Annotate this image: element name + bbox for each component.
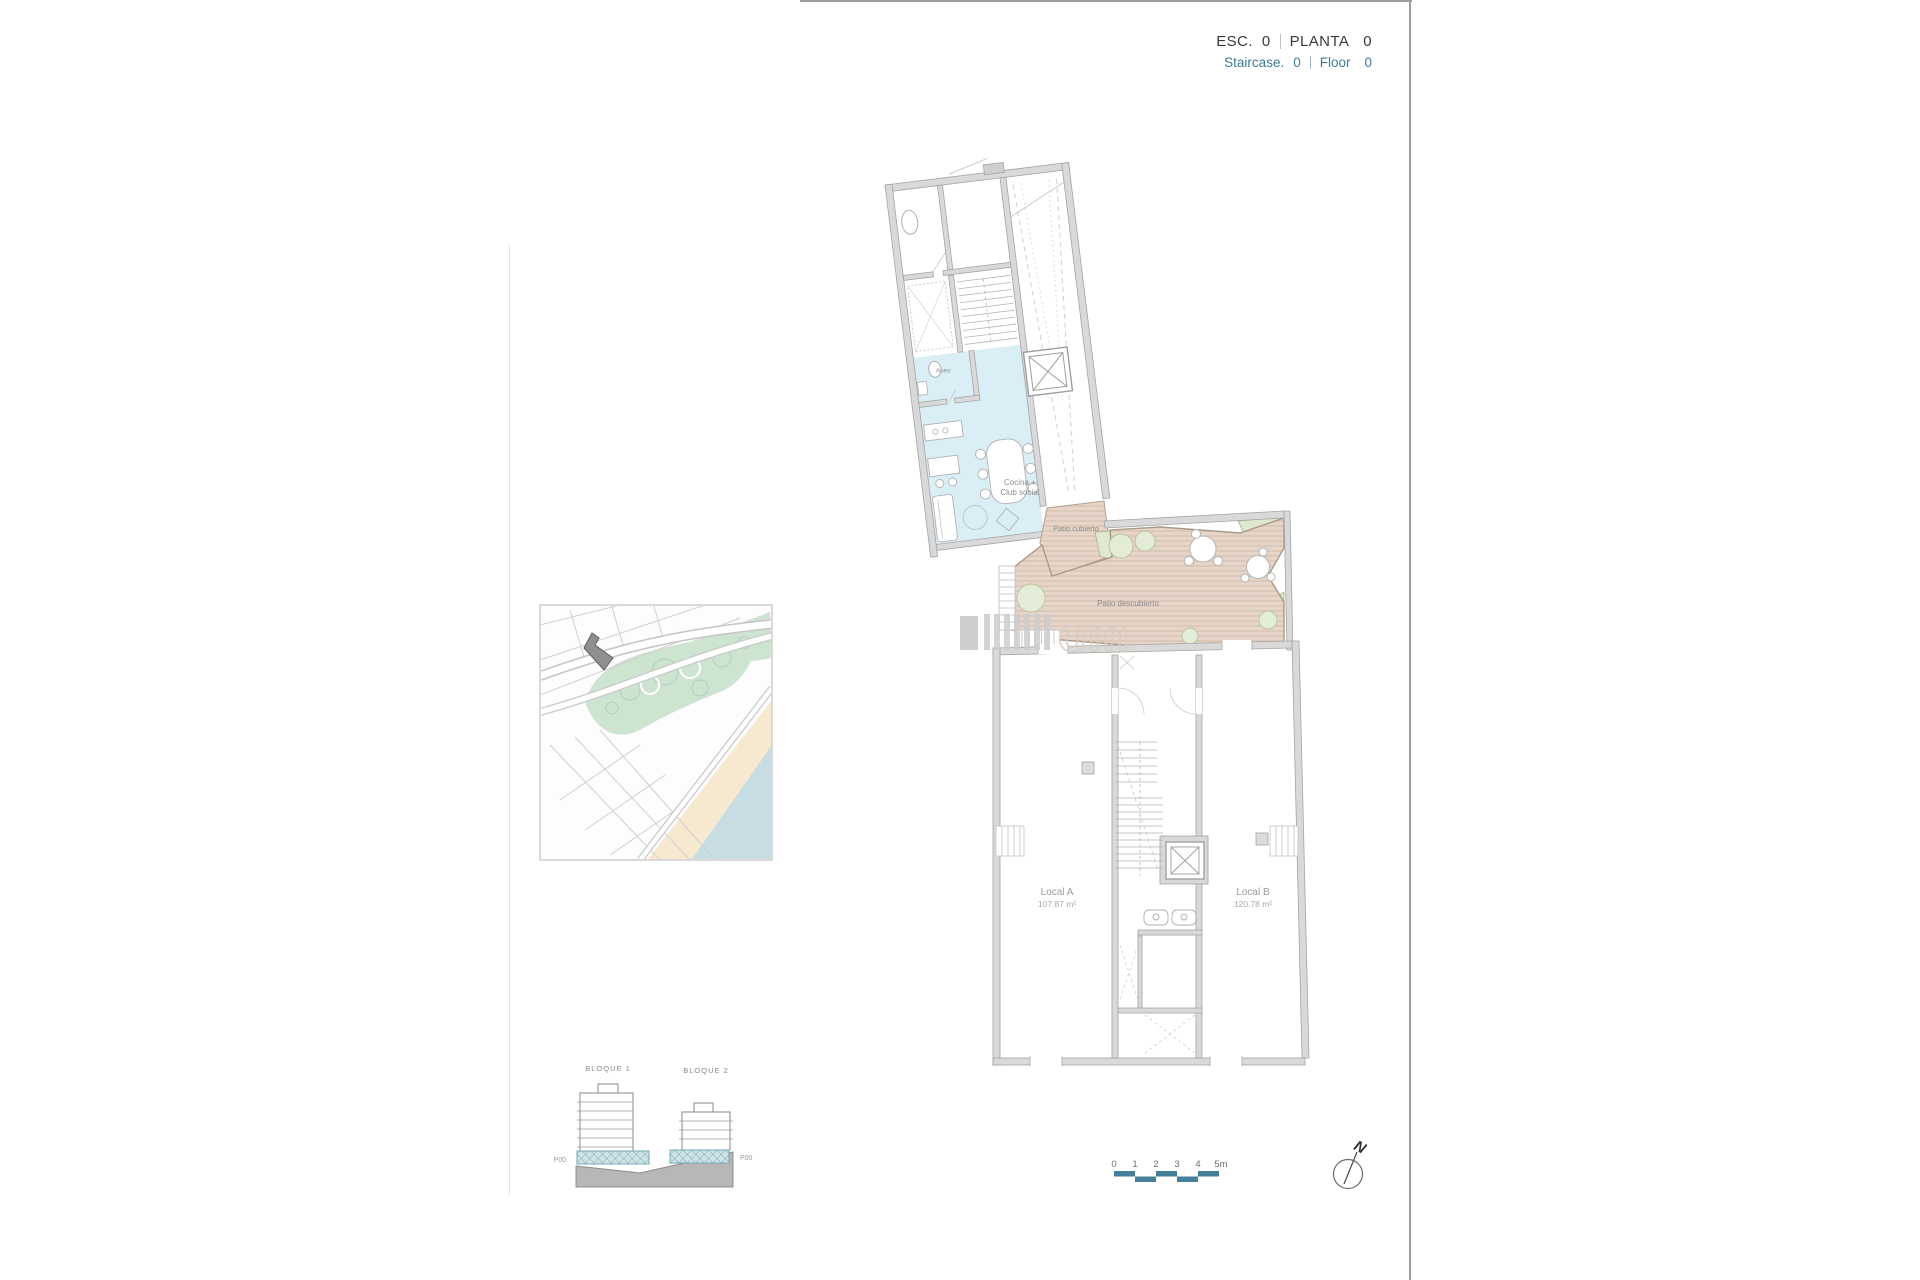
local-b-name: Local B bbox=[1236, 887, 1270, 898]
scale-tick-5: 5m bbox=[1214, 1159, 1227, 1170]
p00-left-label: P00 bbox=[554, 1157, 567, 1164]
bloque1-label: BLOQUE 1 bbox=[585, 1064, 631, 1073]
floor-plan: Aseo Cocina + Club social Patio cubierto bbox=[883, 149, 1309, 1066]
pillar bbox=[1256, 833, 1268, 845]
plan-sheet: ESC.0PLANTA0 Staircase.0Floor0 bbox=[0, 0, 1920, 1280]
scale-tick-1: 1 bbox=[1132, 1159, 1137, 1170]
north-label: N bbox=[1351, 1137, 1370, 1158]
watermark-text: om bbox=[1058, 609, 1131, 661]
compass-needle-icon bbox=[1344, 1152, 1357, 1184]
scale-tick-4: 4 bbox=[1195, 1159, 1200, 1170]
cocina-label-line1: Cocina + bbox=[1004, 478, 1036, 487]
bloque2-label: BLOQUE 2 bbox=[683, 1066, 729, 1075]
pillar bbox=[1082, 762, 1094, 774]
drawing-svg: Aseo Cocina + Club social Patio cubierto bbox=[0, 0, 1920, 1280]
upper-wing: Aseo Cocina + Club social bbox=[883, 149, 1114, 558]
scale-tick-0: 0 bbox=[1111, 1159, 1116, 1170]
patio-table bbox=[1190, 536, 1216, 562]
lower-elevator-icon bbox=[1166, 842, 1204, 879]
local-b-area: 120.78 m² bbox=[1234, 899, 1272, 909]
patio-descubierto-label: Patio descubierto bbox=[1097, 599, 1159, 608]
scale-tick-2: 2 bbox=[1153, 1159, 1158, 1170]
upper-elevator-icon bbox=[1023, 347, 1072, 396]
patio-cubierto-label: Patio cubierto bbox=[1053, 524, 1099, 533]
scale-tick-3: 3 bbox=[1174, 1159, 1179, 1170]
patio-table bbox=[1247, 556, 1270, 579]
p00-right-label: P00 bbox=[740, 1155, 753, 1162]
lower-building: Local A 107.87 m² Local B 120.78 m² bbox=[993, 640, 1309, 1066]
elevation-diagram: BLOQUE 1 BLOQUE 2 P00 P00 bbox=[554, 1064, 753, 1187]
bloque1-p00-slab bbox=[577, 1151, 649, 1164]
scale-bar: 0 1 2 3 4 5m bbox=[1111, 1159, 1227, 1182]
aseo-label: Aseo bbox=[936, 367, 951, 374]
cocina-label-line2: Club social bbox=[1000, 488, 1039, 497]
north-arrow: N bbox=[1334, 1137, 1370, 1188]
bloque2-p00-slab bbox=[670, 1150, 729, 1163]
local-a-name: Local A bbox=[1041, 887, 1074, 898]
site-map bbox=[540, 585, 772, 860]
local-a-area: 107.87 m² bbox=[1038, 899, 1076, 909]
